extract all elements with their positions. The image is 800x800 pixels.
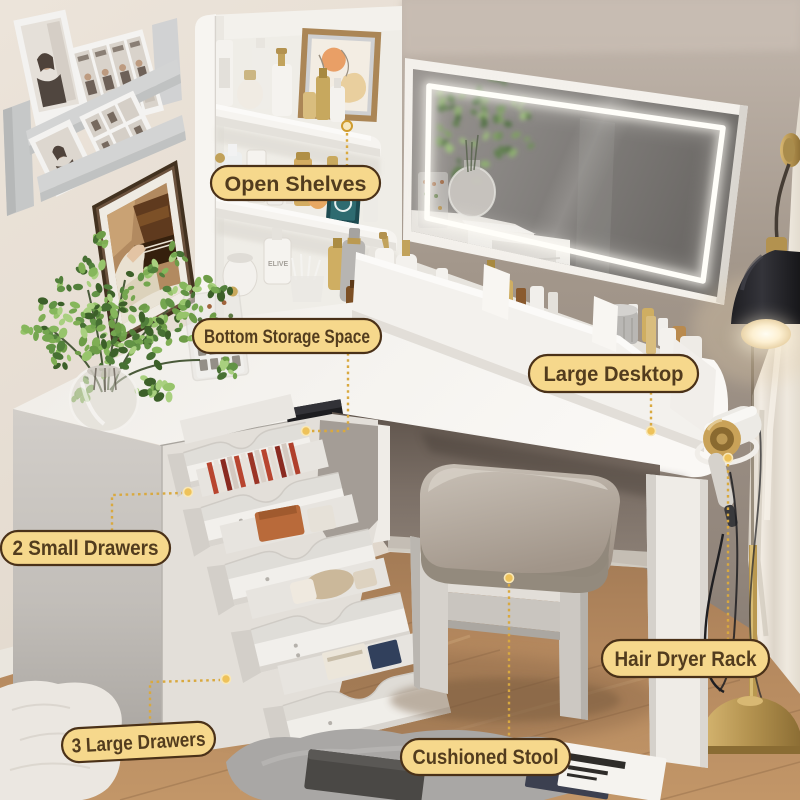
svg-text:2 Small Drawers: 2 Small Drawers: [13, 537, 159, 560]
svg-text:Large Desktop: Large Desktop: [544, 363, 684, 386]
svg-text:Open Shelves: Open Shelves: [225, 173, 367, 196]
svg-text:ELIVE: ELIVE: [268, 261, 289, 268]
svg-text:Cushioned Stool: Cushioned Stool: [413, 746, 559, 769]
svg-text:Hair Dryer Rack: Hair Dryer Rack: [615, 648, 757, 671]
svg-text:Bottom Storage Space: Bottom Storage Space: [204, 327, 370, 348]
